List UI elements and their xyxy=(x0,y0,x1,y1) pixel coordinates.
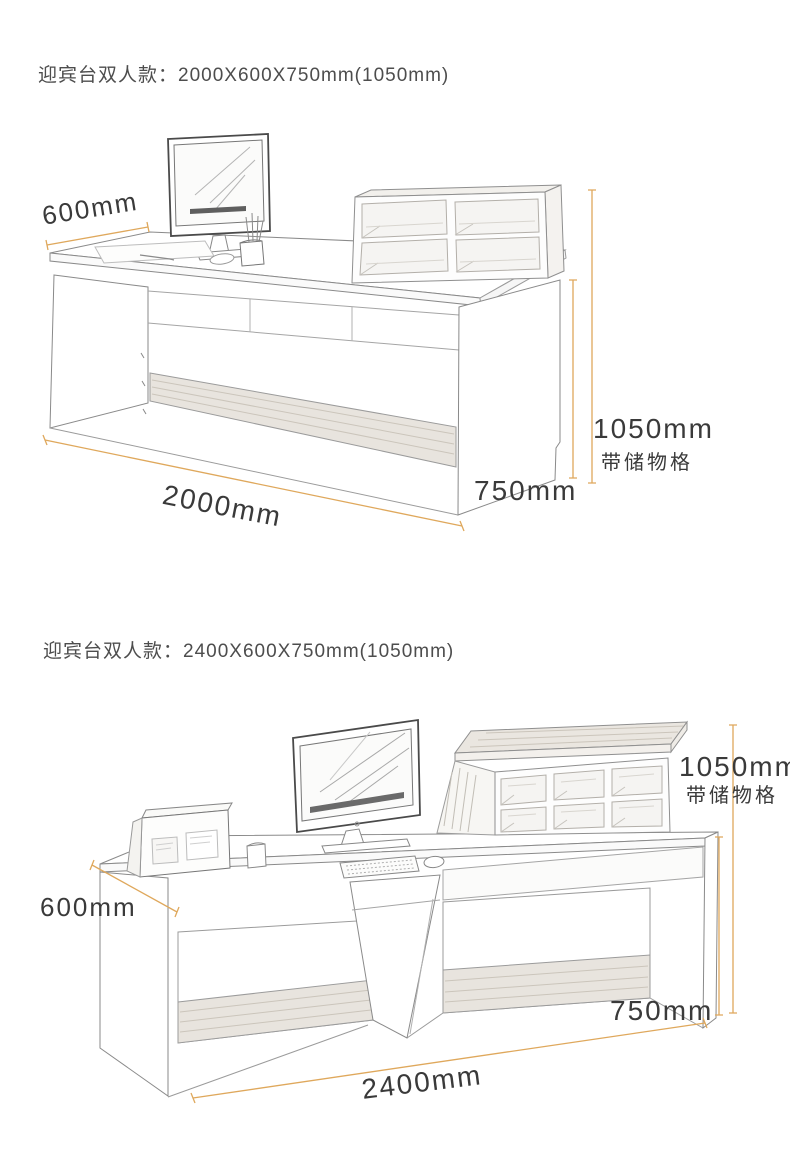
storage-note-label: 带储物格 xyxy=(686,779,778,808)
section-title-2400: 迎宾台双人款：2400X600X750mm(1050mm) xyxy=(43,636,454,663)
storage-note-label: 带储物格 xyxy=(601,446,693,475)
storage-hutch xyxy=(437,722,687,835)
product-spec-page: 迎宾台双人款：2000X600X750mm(1050mm) xyxy=(0,0,790,1149)
dimension-label-depth: 600mm xyxy=(40,892,137,923)
imac-sketch xyxy=(293,720,420,853)
storage-hutch xyxy=(352,185,564,283)
dimension-label-desk-height: 750mm xyxy=(610,995,713,1027)
section-title-2000: 迎宾台双人款：2000X600X750mm(1050mm) xyxy=(38,60,449,87)
desk-sketch-2000 xyxy=(0,115,790,545)
dimension-label-desk-height: 750mm xyxy=(474,475,577,507)
dimension-label-overall-height: 1050mm xyxy=(593,413,714,445)
